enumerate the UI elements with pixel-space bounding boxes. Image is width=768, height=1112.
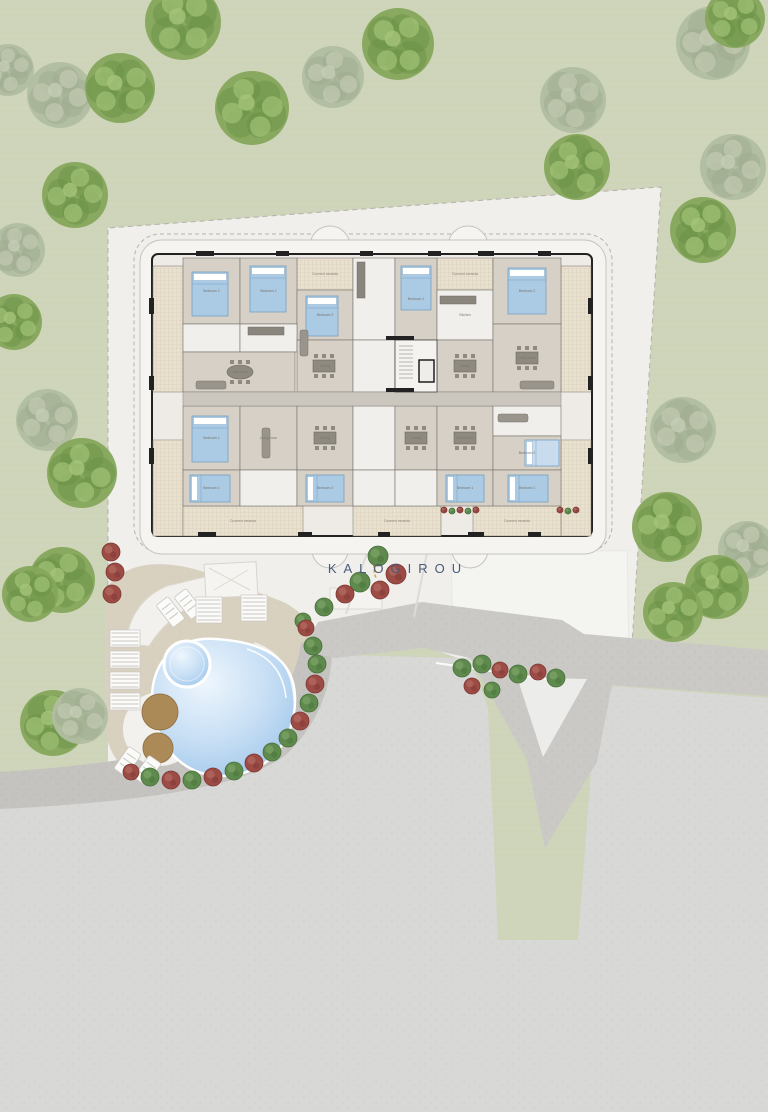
room-label: Living room [260, 436, 278, 440]
room [353, 340, 395, 392]
bush [464, 678, 480, 694]
bush [371, 581, 389, 599]
sun-lounger [241, 595, 267, 621]
bush [573, 507, 579, 513]
bush [449, 508, 455, 514]
elevator [419, 360, 434, 382]
bush [291, 712, 309, 730]
wall-segment [149, 298, 154, 314]
sofa [300, 330, 308, 356]
wall-segment [276, 251, 289, 256]
room [353, 470, 395, 506]
tree [362, 8, 434, 80]
bush [141, 768, 159, 786]
veranda [561, 266, 591, 392]
bush [457, 507, 463, 513]
site-name-label: KALOGIROU [318, 561, 478, 576]
bush [484, 682, 500, 698]
bush [509, 665, 527, 683]
wall-segment [538, 251, 551, 256]
veranda-label: Covered veranda [230, 519, 256, 523]
room-label: Bedroom 1 [457, 486, 474, 490]
wall-segment [386, 388, 414, 392]
kitchen-counter [357, 262, 365, 298]
tree [540, 67, 606, 133]
sofa [498, 414, 528, 422]
wall-segment [198, 532, 216, 537]
site-plan-canvas: Bedroom 2Bedroom 1Bedroom 3Bedroom 1Kitc… [0, 0, 768, 1112]
bush [263, 743, 281, 761]
room-label: Living room [456, 436, 474, 440]
room-label: Bedroom 3 [317, 313, 334, 317]
bush [304, 637, 322, 655]
tree [52, 688, 108, 744]
veranda-label: Covered veranda [504, 519, 530, 523]
room-label: Living room [230, 370, 248, 374]
room-label: Bedroom 2 [519, 451, 536, 455]
room [395, 470, 437, 506]
room-label: Bedroom 2 [203, 289, 220, 293]
bush [123, 764, 139, 780]
kitchen-counter [248, 327, 284, 335]
sofa [520, 381, 554, 389]
bush [441, 507, 447, 513]
room-label: Bedroom 1 [203, 486, 220, 490]
bush [465, 508, 471, 514]
bed [401, 266, 431, 310]
bush [565, 508, 571, 514]
bush [245, 754, 263, 772]
room [183, 324, 240, 352]
room-label: Bedroom 2 [519, 289, 536, 293]
site-plan-svg: Bedroom 2Bedroom 1Bedroom 3Bedroom 1Kitc… [0, 0, 768, 1112]
tree [2, 566, 58, 622]
bush [162, 771, 180, 789]
bush [336, 585, 354, 603]
bush [473, 507, 479, 513]
tree [47, 438, 117, 508]
bush [453, 659, 471, 677]
tree [643, 582, 703, 642]
bush [102, 543, 120, 561]
bush [306, 675, 324, 693]
bush [279, 729, 297, 747]
veranda-label: Covered veranda [452, 272, 478, 276]
veranda [561, 440, 591, 536]
room-label: Bedroom 1 [519, 486, 536, 490]
tree [27, 62, 93, 128]
tree [700, 134, 766, 200]
bush [225, 762, 243, 780]
wall-segment [468, 532, 484, 537]
room-label: Kitchen [459, 313, 470, 317]
tree [42, 162, 108, 228]
building: Bedroom 2Bedroom 1Bedroom 3Bedroom 1Kitc… [134, 226, 612, 568]
wall-segment [149, 376, 154, 390]
bush [315, 598, 333, 616]
room-label: Dining [320, 436, 330, 440]
spa-pool [164, 641, 210, 687]
tree [670, 197, 736, 263]
wall-segment [588, 298, 593, 314]
sofa [262, 428, 270, 458]
veranda [153, 266, 183, 392]
bush [473, 655, 491, 673]
corridor [183, 392, 561, 406]
bush [308, 655, 326, 673]
wall-segment [588, 448, 593, 464]
room-label: Bedroom 1 [408, 297, 425, 301]
sun-lounger [110, 693, 140, 710]
wall-segment [378, 532, 390, 537]
bush [530, 664, 546, 680]
stair-core [395, 340, 437, 392]
veranda [153, 440, 183, 536]
veranda-label: Covered veranda [384, 519, 410, 523]
tree [632, 492, 702, 562]
bush [183, 771, 201, 789]
room [240, 470, 297, 506]
wall-segment [428, 251, 441, 256]
sun-lounger [110, 672, 140, 689]
room-label: Bedroom 3 [317, 486, 334, 490]
veranda-label: Covered veranda [312, 272, 338, 276]
tree [215, 71, 289, 145]
tree [85, 53, 155, 123]
wall-segment [149, 448, 154, 464]
bed [192, 272, 228, 316]
bush [547, 669, 565, 687]
sofa [196, 381, 226, 389]
tree [544, 134, 610, 200]
room-label: Living room [518, 356, 536, 360]
bush [557, 507, 563, 513]
bush [103, 585, 121, 603]
room-label: Dining [411, 436, 421, 440]
bush [106, 563, 124, 581]
wall-segment [386, 336, 414, 340]
bush [492, 662, 508, 678]
room [353, 406, 395, 470]
bush [300, 694, 318, 712]
wall-segment [298, 532, 312, 537]
wall-segment [528, 532, 541, 537]
kitchen-counter [440, 296, 476, 304]
sun-lounger [196, 597, 222, 623]
sun-lounger [110, 651, 140, 668]
room-label: Bedroom 1 [260, 289, 277, 293]
bush [298, 620, 314, 636]
room-label: Bedroom 1 [203, 436, 220, 440]
wall-segment [478, 251, 494, 256]
room-label: Dining [460, 364, 470, 368]
wall-segment [196, 251, 214, 256]
tree [302, 46, 364, 108]
sun-lounger [110, 630, 140, 647]
wall-segment [360, 251, 373, 256]
tree [650, 397, 716, 463]
wood-platform [142, 694, 178, 730]
room-label: Dining [320, 364, 330, 368]
wall-segment [588, 376, 593, 390]
bush [204, 768, 222, 786]
